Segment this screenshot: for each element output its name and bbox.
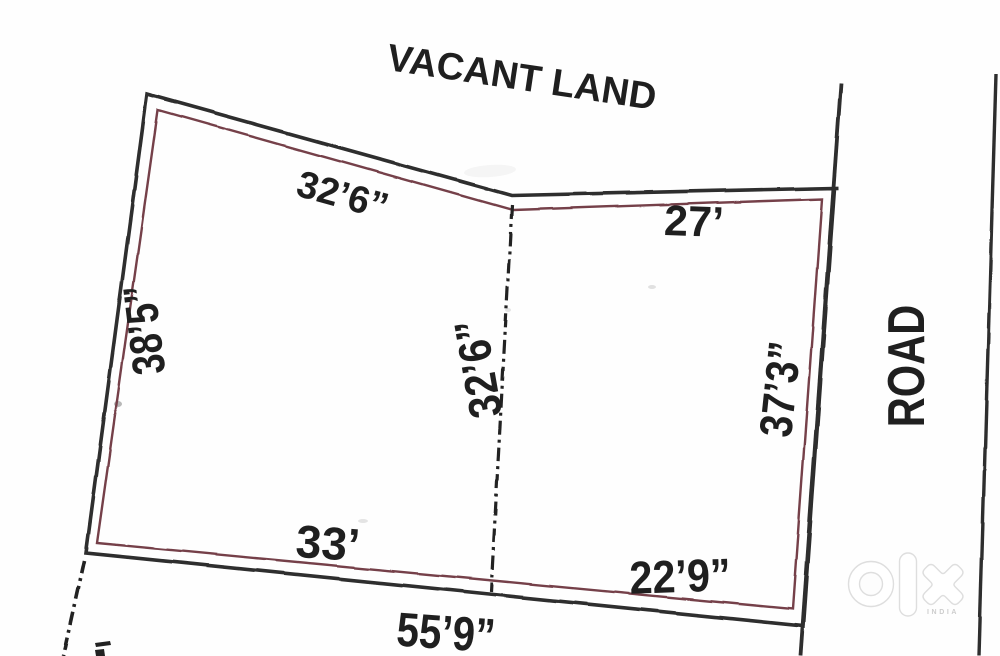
svg-text:37’3”: 37’3” [750, 339, 811, 439]
svg-text:27’: 27’ [663, 197, 724, 247]
svg-text:ROAD: ROAD [877, 305, 936, 427]
svg-text:55’9”: 55’9” [395, 603, 497, 656]
svg-text:38’5”: 38’5” [113, 282, 175, 378]
svg-text:INDIA: INDIA [927, 609, 959, 616]
svg-text:33’: 33’ [294, 515, 361, 571]
svg-text:22’9”: 22’9” [629, 549, 732, 604]
